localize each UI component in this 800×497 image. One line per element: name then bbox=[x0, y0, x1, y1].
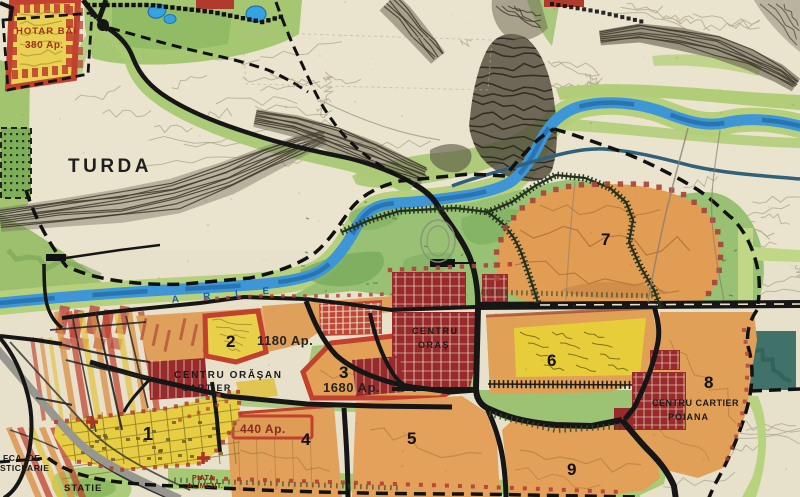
svg-text:ALIMENT.: ALIMENT. bbox=[187, 483, 223, 490]
svg-text:1: 1 bbox=[143, 424, 153, 444]
svg-text:STATIE: STATIE bbox=[64, 483, 102, 494]
svg-text:CENTRU: CENTRU bbox=[412, 326, 459, 336]
svg-text:ORAŞ: ORAŞ bbox=[418, 340, 450, 350]
svg-text:FCA. DE: FCA. DE bbox=[3, 453, 41, 463]
svg-text:PIATA: PIATA bbox=[192, 475, 214, 482]
svg-text:4: 4 bbox=[301, 430, 311, 449]
svg-text:POIANA: POIANA bbox=[668, 412, 709, 422]
svg-text:TURDA: TURDA bbox=[68, 156, 152, 177]
svg-text:3: 3 bbox=[339, 363, 348, 382]
svg-text:8: 8 bbox=[704, 373, 713, 392]
svg-text:CARTIER: CARTIER bbox=[182, 383, 232, 393]
svg-text:HOTAR BĂI: HOTAR BĂI bbox=[16, 26, 77, 37]
svg-text:1180 Ap.: 1180 Ap. bbox=[257, 333, 313, 348]
svg-text:STICLARIE: STICLARIE bbox=[0, 463, 49, 473]
svg-text:5: 5 bbox=[407, 429, 416, 448]
svg-text:CENTRU ORĂŞAN: CENTRU ORĂŞAN bbox=[174, 368, 283, 381]
svg-text:7: 7 bbox=[601, 230, 610, 249]
svg-text:2: 2 bbox=[226, 332, 235, 351]
svg-text:9: 9 bbox=[567, 460, 576, 479]
svg-text:1680 Ap.: 1680 Ap. bbox=[323, 380, 380, 395]
svg-text:6: 6 bbox=[547, 351, 556, 370]
svg-text:CENTRU CARTIER: CENTRU CARTIER bbox=[652, 398, 739, 408]
svg-text:440 Ap.: 440 Ap. bbox=[240, 422, 286, 436]
svg-text:380 Ap.: 380 Ap. bbox=[25, 40, 64, 51]
